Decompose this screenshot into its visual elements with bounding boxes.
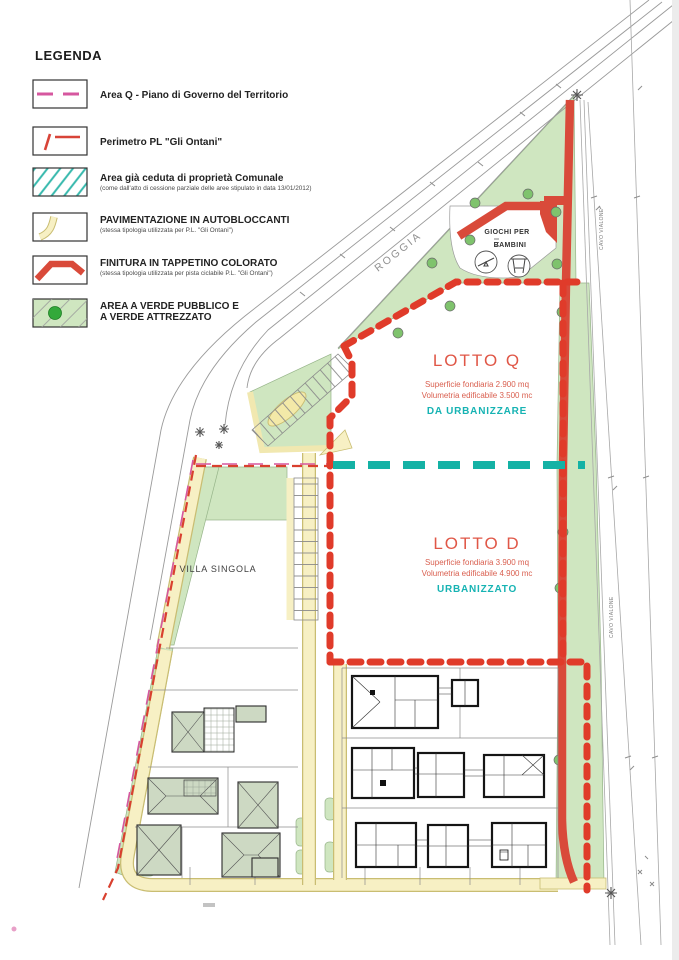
- star-marker: [605, 887, 617, 899]
- lotto-d-volumetria: Volumetria edificabile 4.900 mc: [422, 569, 533, 578]
- survey-line: [630, 0, 661, 945]
- legend-swatch-ceduta: [33, 168, 87, 196]
- legend-item-perimetro: Perimetro PL "Gli Ontani": [33, 127, 222, 155]
- legend-item-label-line2: A VERDE ATTREZZATO: [100, 312, 212, 323]
- house-plan: [356, 823, 546, 867]
- lotto-d-title: LOTTO D: [433, 534, 520, 553]
- legend-item-sublabel: (come dall'atto di cessione parziale del…: [100, 185, 312, 192]
- legend: LEGENDA Area Q - Piano di Governo del Te…: [33, 48, 312, 327]
- scan-edge: [672, 0, 679, 960]
- playground-label-line2: BAMBINI: [494, 242, 527, 249]
- legend-item-tappetino: FINITURA IN TAPPETINO COLORATO (stessa t…: [33, 256, 278, 284]
- lotto-q-title: LOTTO Q: [433, 351, 521, 370]
- lotto-q-superficie: Superficie fondiaria 2.900 mq: [425, 380, 529, 389]
- legend-item-autobloccanti: PAVIMENTAZIONE IN AUTOBLOCCANTI (stessa …: [33, 213, 290, 241]
- canal-label-south: CAVO VIALONE: [609, 596, 615, 638]
- house-roof: [137, 825, 181, 875]
- legend-item-sublabel: (stessa tipologia utilizzata per P.L. "G…: [100, 227, 233, 234]
- legend-item-sublabel: (stessa tipologia utilizzata per pista c…: [100, 270, 273, 277]
- pink-speck: [12, 927, 17, 932]
- playground-label-line1: GIOCHI PER: [484, 229, 529, 236]
- small-markers: [638, 856, 654, 886]
- buildings-east: [342, 668, 558, 885]
- lotto-q-labels: LOTTO Q Superficie fondiaria 2.900 mq Vo…: [422, 351, 533, 417]
- legend-item-verde: AREA A VERDE PUBBLICO E A VERDE ATTREZZA…: [33, 299, 239, 327]
- star-marker: [195, 427, 205, 437]
- parking-strip-vertical: [294, 478, 318, 620]
- site-plan-svg: ROGGIA CAVO VIALONE CAVO VIALONE GIOCHI …: [0, 0, 679, 960]
- scanned-site-plan: ROGGIA CAVO VIALONE CAVO VIALONE GIOCHI …: [0, 0, 679, 960]
- legend-item-area-ceduta: Area già ceduta di proprietà Comunale (c…: [33, 168, 312, 196]
- lotto-d-labels: LOTTO D Superficie fondiaria 3.900 mq Vo…: [422, 534, 533, 595]
- star-marker: [215, 441, 223, 449]
- star-marker: [219, 424, 229, 434]
- legend-title: LEGENDA: [35, 48, 102, 63]
- perimeter-lotto-west: [330, 346, 352, 662]
- legend-item-label: FINITURA IN TAPPETINO COLORATO: [100, 258, 278, 269]
- house-roof: [148, 778, 218, 814]
- legend-swatch-perimetro: [33, 127, 87, 155]
- legend-item-label: Perimetro PL "Gli Ontani": [100, 137, 222, 148]
- legend-item-label: PAVIMENTAZIONE IN AUTOBLOCCANTI: [100, 215, 290, 226]
- house-plan: [352, 748, 544, 798]
- legend-item-label: Area già ceduta di proprietà Comunale: [100, 173, 284, 184]
- lotto-d-superficie: Superficie fondiaria 3.900 mq: [425, 558, 529, 567]
- red-band-stub: [544, 196, 571, 205]
- canal-label-north: CAVO VIALONE: [599, 208, 605, 250]
- house-roof: [238, 782, 278, 828]
- house-plan: [352, 676, 478, 728]
- road-line: [247, 16, 679, 388]
- legend-item-area-q: Area Q - Piano di Governo del Territorio: [33, 80, 288, 108]
- lotto-q-status: DA URBANIZZARE: [427, 406, 527, 417]
- villa-label: VILLA SINGOLA: [180, 564, 257, 574]
- swing-icon: [508, 255, 530, 277]
- house-roof: [222, 833, 280, 877]
- lotto-q-volumetria: Volumetria edificabile 3.500 mc: [422, 391, 533, 400]
- legend-item-label: Area Q - Piano di Governo del Territorio: [100, 90, 288, 101]
- house-roof: [172, 706, 266, 752]
- gray-smudge: [203, 903, 215, 907]
- tree-icon: [49, 307, 62, 320]
- legend-item-label-line1: AREA A VERDE PUBBLICO E: [100, 301, 239, 312]
- lotto-d-status: URBANIZZATO: [437, 584, 517, 595]
